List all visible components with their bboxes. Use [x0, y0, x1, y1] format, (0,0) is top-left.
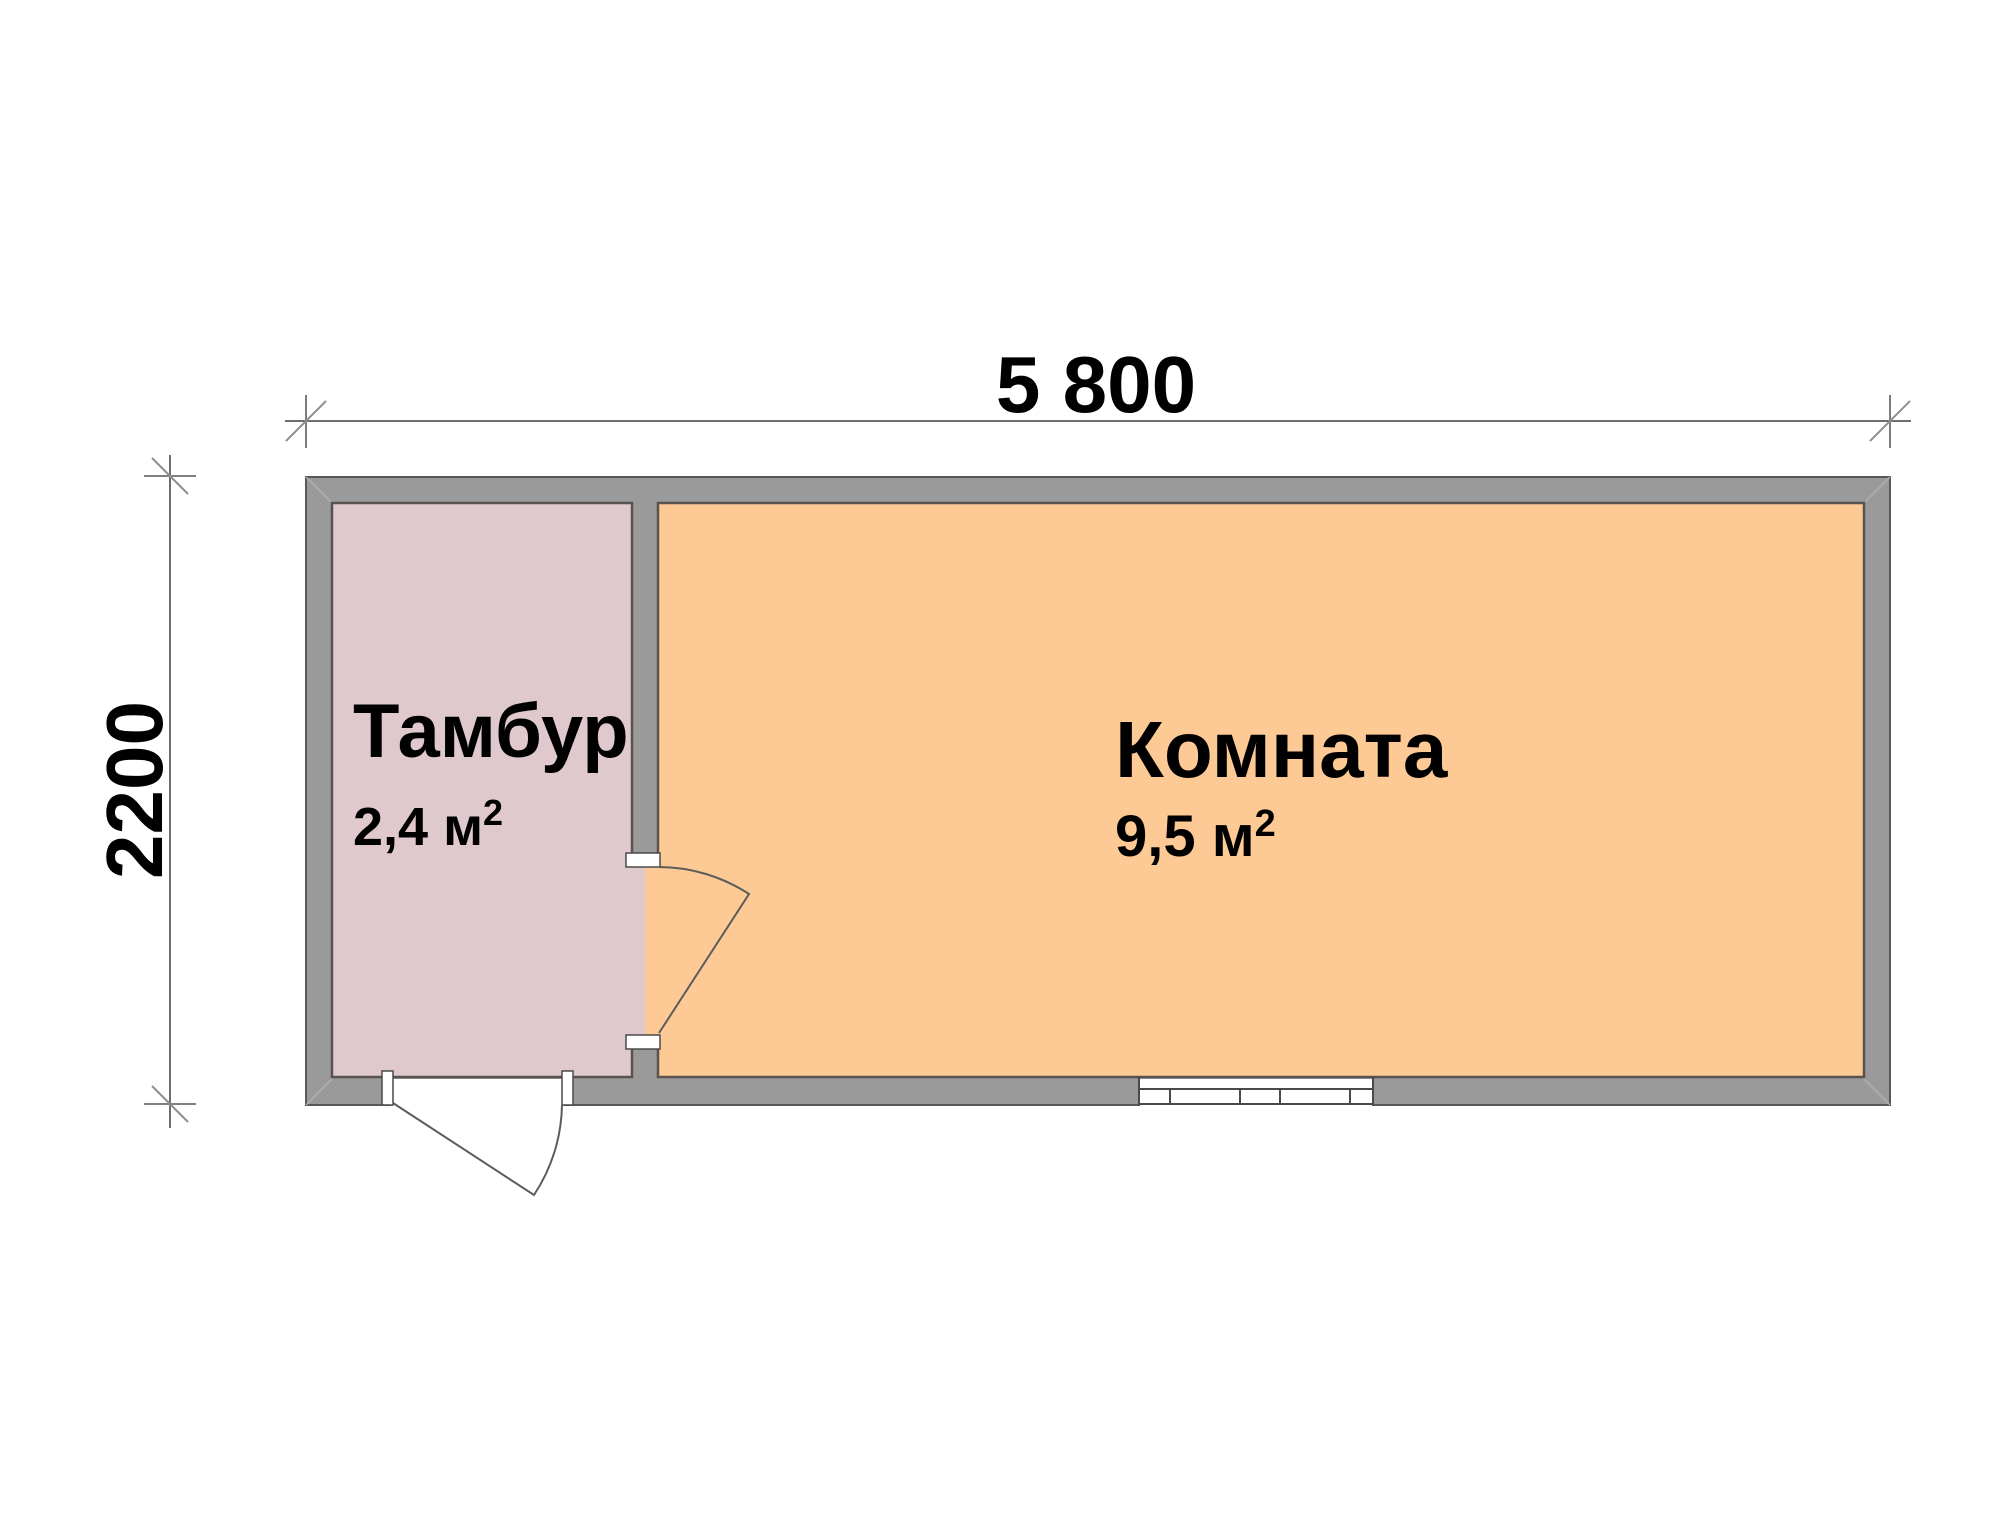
exterior-door-jamb-right: [562, 1071, 573, 1105]
room-komnata-area: 9,5 м2: [1115, 803, 1276, 869]
room-komnata-area-value: 9,5 м: [1115, 804, 1255, 869]
dimension-height: 2200: [90, 455, 196, 1128]
room-tambour-area: 2,4 м2: [353, 792, 503, 857]
exterior-door-opening: [391, 1079, 564, 1111]
interior-door-jamb-bottom: [626, 1035, 660, 1049]
room-komnata-area-sup: 2: [1255, 803, 1276, 845]
interior-door-opening-left: [629, 867, 645, 1035]
floor-plan-canvas: Тамбур 2,4 м2 Комната 9,5 м2 5 800 2200: [0, 0, 2000, 1538]
interior-door-opening-right: [645, 867, 661, 1035]
room-tambour: [332, 503, 632, 1077]
exterior-door-jamb-left: [382, 1071, 393, 1105]
exterior-door: [393, 1103, 562, 1195]
room-tambour-area-sup: 2: [483, 792, 503, 833]
building: Тамбур 2,4 м2 Комната 9,5 м2: [306, 477, 1890, 1195]
dimension-width: 5 800: [285, 340, 1911, 448]
room-tambour-label: Тамбур: [353, 689, 629, 774]
dimension-height-label: 2200: [90, 701, 179, 879]
room-tambour-area-value: 2,4 м: [353, 797, 483, 857]
floor-plan-page: Тамбур 2,4 м2 Комната 9,5 м2 5 800 2200: [0, 0, 2000, 1538]
dimension-width-label: 5 800: [996, 340, 1196, 429]
interior-door-jamb-top: [626, 853, 660, 867]
room-komnata-label: Комната: [1115, 705, 1448, 794]
